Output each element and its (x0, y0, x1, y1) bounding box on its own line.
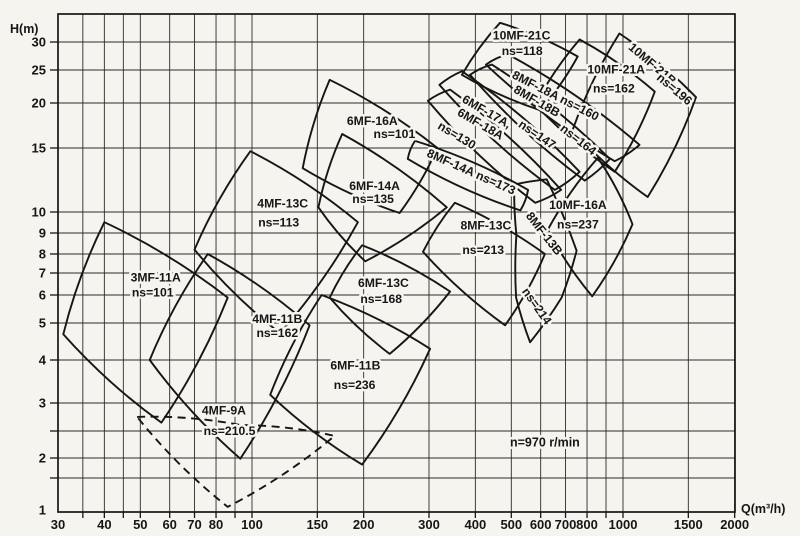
pump-region-label: ns=236 (334, 378, 376, 392)
pump-region-label: ns=162 (256, 326, 298, 340)
pump-region-label: 6MF-11B (330, 359, 380, 373)
pump-region-label: ns=118 (502, 44, 543, 58)
pump-region-label: 6MF-14A (349, 179, 400, 193)
y-tick-label: 6 (39, 288, 46, 303)
x-tick-label: 400 (465, 517, 487, 532)
y-tick-label: 20 (32, 96, 46, 111)
x-tick-label: 80 (209, 517, 223, 532)
x-tick-label: 300 (418, 517, 440, 532)
y-tick-label: 2 (39, 451, 46, 466)
y-tick-label: 5 (39, 316, 46, 331)
x-tick-label: 1500 (674, 517, 703, 532)
x-tick-label: 200 (353, 517, 375, 532)
x-tick-label: 150 (306, 517, 328, 532)
y-tick-label: 7 (39, 266, 46, 281)
x-tick-label: 600 (530, 517, 552, 532)
x-tick-label: 60 (162, 517, 176, 532)
y-tick-label: 4 (39, 353, 47, 368)
pump-region-label: 6MF-16A (347, 114, 398, 128)
x-tick-label: 500 (500, 517, 522, 532)
y-tick-label: 30 (32, 35, 46, 50)
y-tick-label: 25 (32, 63, 46, 78)
pump-region-label: 4MF-13C (257, 196, 308, 210)
pump-region-label: 4MF-9A (202, 404, 246, 418)
pump-region-label: 10MF-16A (549, 198, 607, 212)
y-tick-label: 15 (32, 141, 46, 156)
pump-region-label: 8MF-13C (461, 219, 512, 233)
speed-annotation: n=970 r/min (510, 436, 580, 450)
x-tick-label: 40 (97, 517, 111, 532)
pump-region-label: 10MF-21A (587, 63, 645, 77)
pump-range-chart-svg: 3040506070801001502003004005006007008001… (0, 0, 800, 536)
y-tick-label: 8 (39, 247, 46, 262)
pump-region-label: 3MF-11A (131, 270, 181, 284)
x-axis-title: Q(m³/h) (741, 502, 785, 516)
pump-region-label: ns=237 (557, 218, 599, 232)
pump-region-label: 4MF-11B (252, 312, 302, 326)
x-tick-label: 50 (133, 517, 147, 532)
pump-region-label: ns=101 (132, 285, 174, 299)
pump-region-label: ns=162 (593, 81, 635, 95)
pump-region-label: ns=101 (374, 127, 416, 141)
pump-region-label: 10MF-21C (493, 29, 551, 43)
x-tick-label: 70 (187, 517, 201, 532)
y-tick-label: 9 (39, 226, 46, 241)
y-tick-label: 3 (39, 396, 46, 411)
x-tick-label: 30 (51, 517, 65, 532)
pump-region-label: ns=135 (352, 192, 394, 206)
x-tick-label: 1000 (609, 517, 638, 532)
x-tick-label: 2000 (720, 517, 749, 532)
x-tick-label: 700 (555, 517, 577, 532)
pump-region-label: ns=113 (258, 216, 299, 230)
x-tick-label: 800 (576, 517, 598, 532)
x-tick-label: 100 (241, 517, 263, 532)
y-tick-label: 1 (39, 503, 46, 518)
pump-selection-chart: 3040506070801001502003004005006007008001… (0, 0, 800, 536)
pump-region-label: ns=168 (360, 292, 402, 306)
y-axis-title: H(m) (10, 22, 38, 36)
pump-region-label: ns=210.5 (204, 424, 256, 438)
y-tick-label: 10 (32, 205, 46, 220)
pump-region-label: ns=213 (462, 243, 504, 257)
pump-region-label: 6MF-13C (358, 276, 409, 290)
